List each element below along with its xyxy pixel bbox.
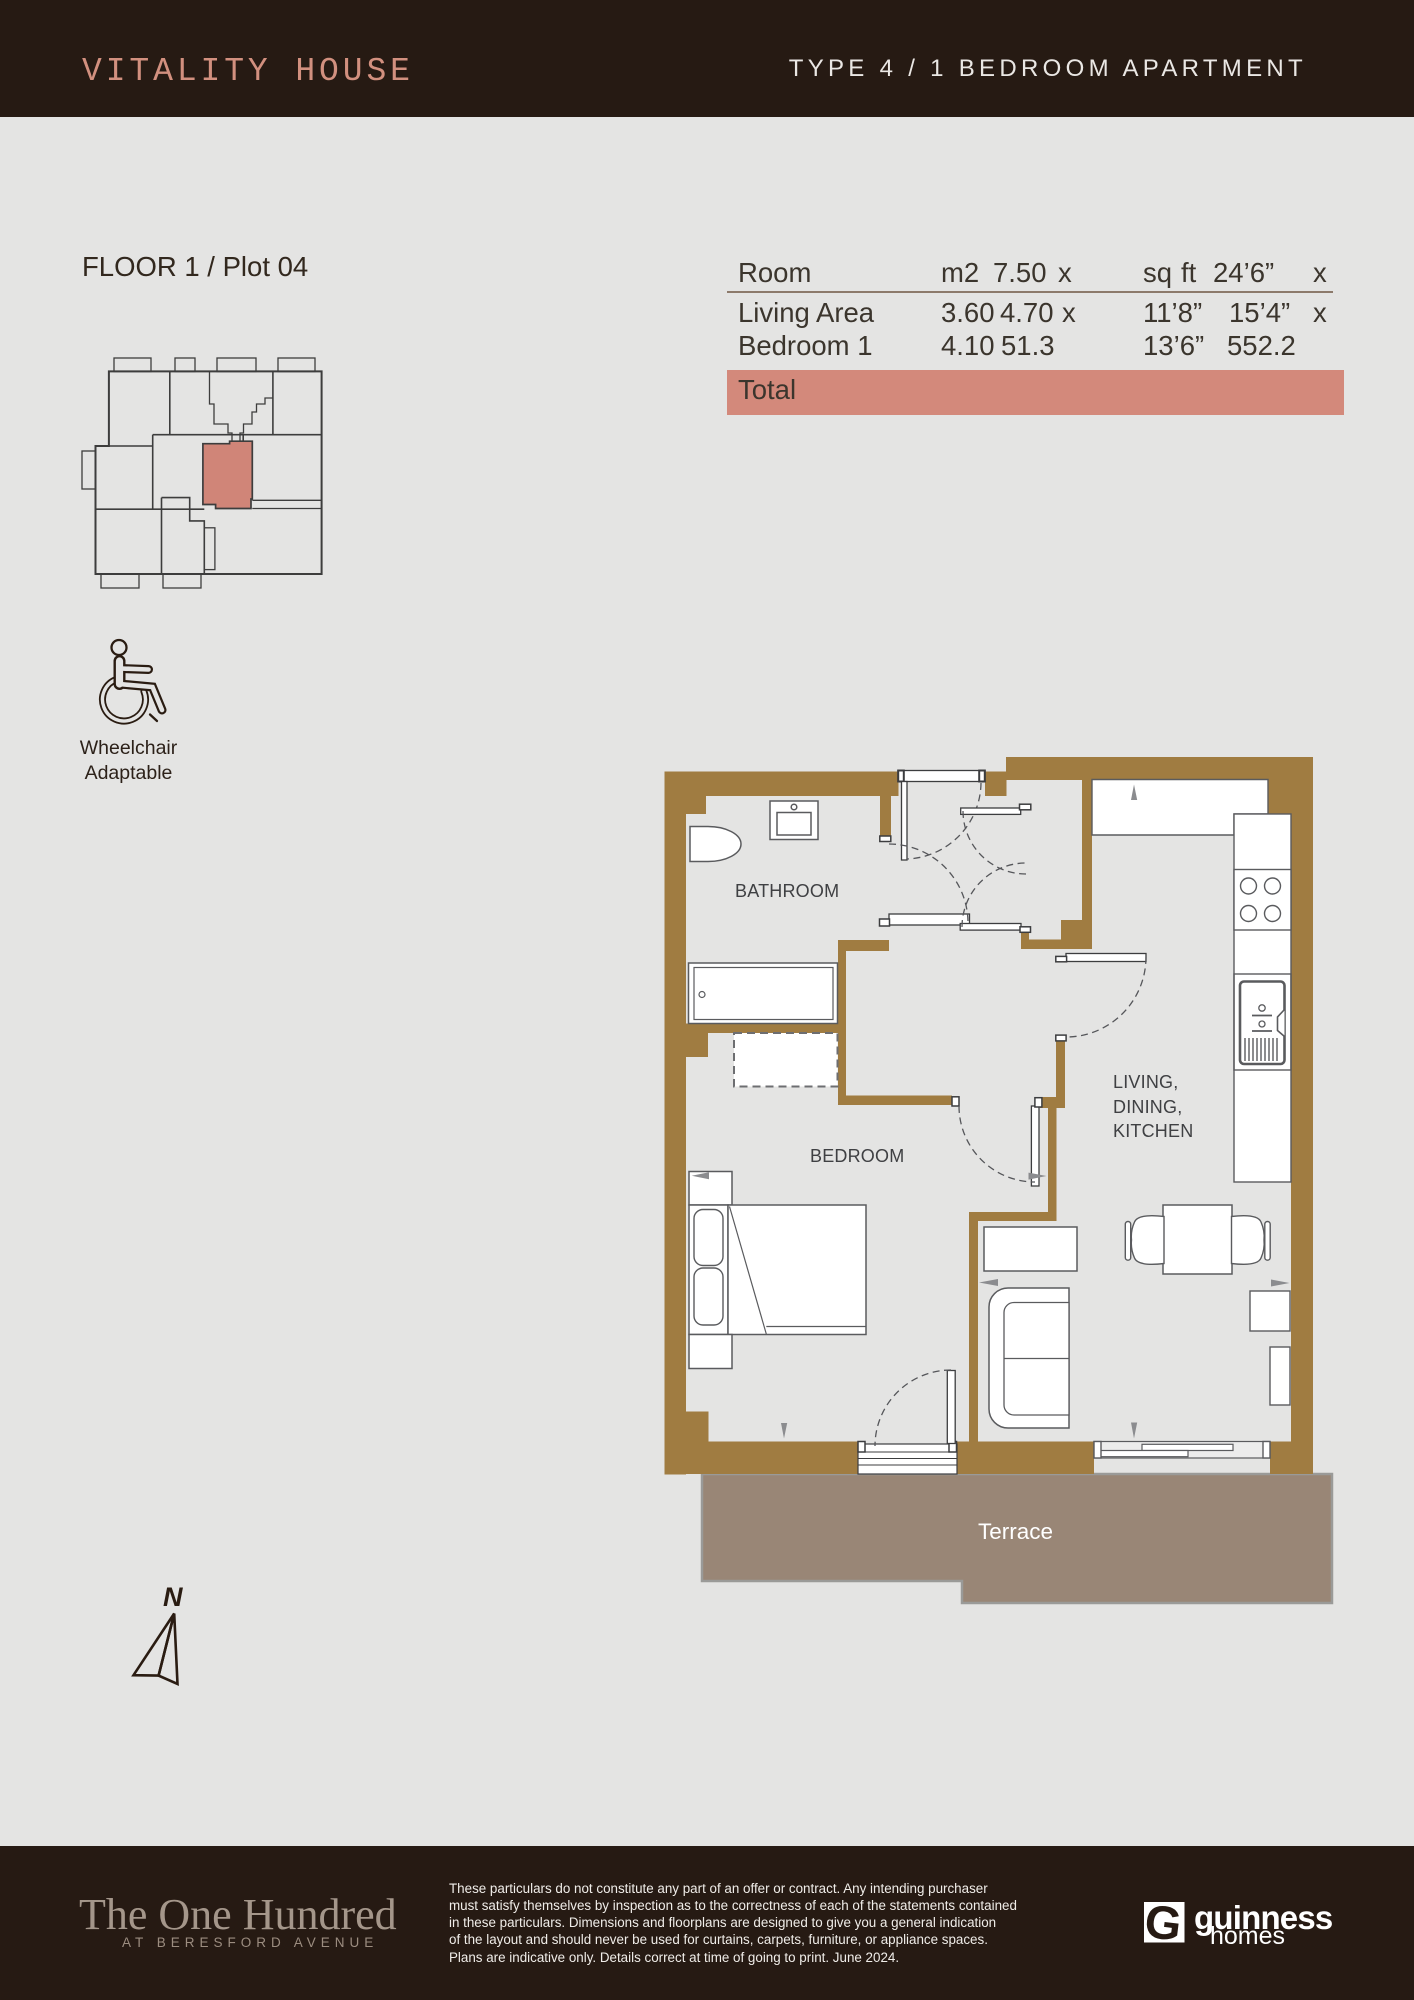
svg-text:G: G — [1142, 1894, 1185, 1951]
svg-text:N: N — [163, 1582, 183, 1612]
